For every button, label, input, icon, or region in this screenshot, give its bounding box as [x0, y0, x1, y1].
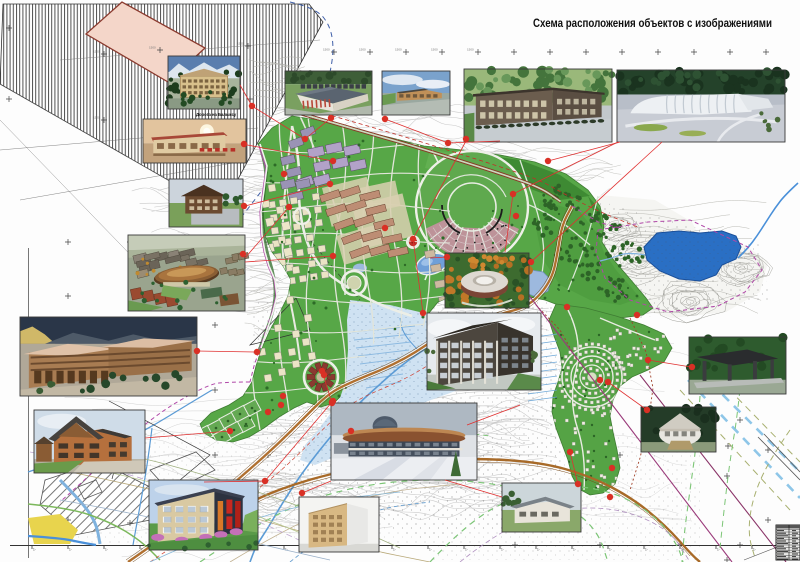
- svg-text:Дорога на Балыксу: Дорога на Балыксу: [196, 112, 237, 117]
- svg-text:1‑: 1‑: [609, 548, 612, 552]
- svg-text:1‑: 1‑: [105, 548, 108, 552]
- svg-text:1500: 1500: [395, 48, 402, 52]
- svg-text:1‑: 1‑: [501, 548, 504, 552]
- svg-text:1500: 1500: [359, 48, 366, 52]
- svg-text:1‑: 1‑: [465, 548, 468, 552]
- svg-text:1500: 1500: [149, 46, 156, 50]
- svg-text:1500: 1500: [237, 42, 244, 46]
- svg-text:1500: 1500: [431, 48, 438, 52]
- svg-text:1500: 1500: [93, 50, 100, 54]
- svg-text:1500: 1500: [93, 116, 100, 120]
- svg-text:1500: 1500: [323, 48, 330, 52]
- svg-text:1‑: 1‑: [645, 548, 648, 552]
- svg-text:1‑: 1‑: [573, 548, 576, 552]
- svg-text:1‑: 1‑: [285, 548, 288, 552]
- svg-text:1500: 1500: [467, 48, 474, 52]
- svg-text:1‑: 1‑: [717, 548, 720, 552]
- svg-text:1‑: 1‑: [393, 548, 396, 552]
- svg-text:Схема расположения объектов с: Схема расположения объектов с изображени…: [533, 17, 772, 30]
- svg-text:1‑: 1‑: [69, 548, 72, 552]
- svg-text:1‑: 1‑: [33, 548, 36, 552]
- svg-text:1‑: 1‑: [429, 548, 432, 552]
- svg-text:1‑: 1‑: [537, 548, 540, 552]
